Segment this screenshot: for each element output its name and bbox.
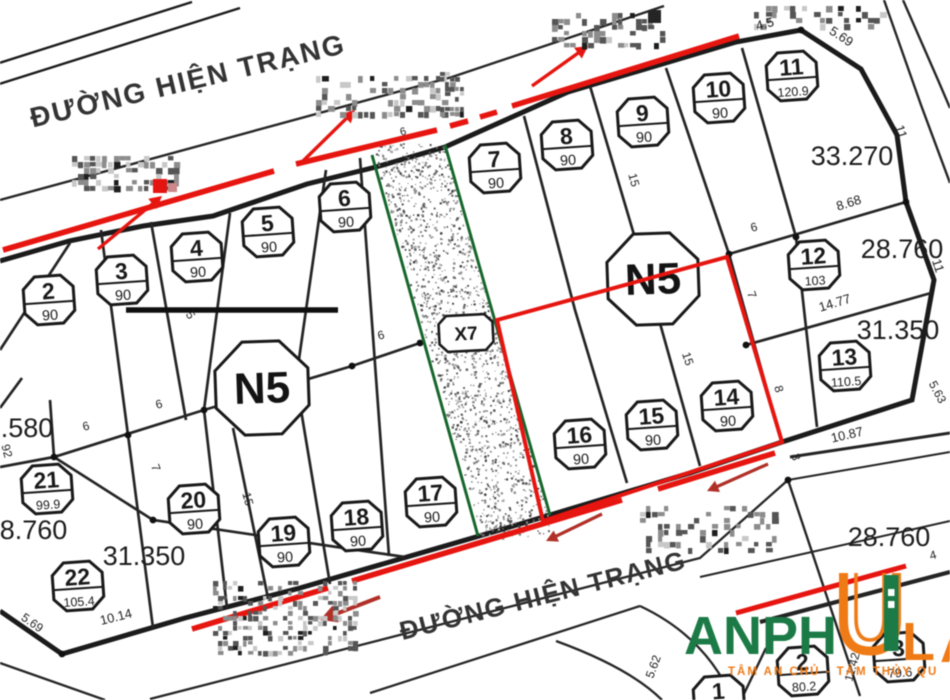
svg-text:90: 90 <box>115 287 132 304</box>
svg-text:3: 3 <box>114 258 129 285</box>
svg-text:28.760: 28.760 <box>861 234 944 264</box>
svg-text:14: 14 <box>713 383 741 411</box>
svg-text:ANPH: ANPH <box>684 606 837 666</box>
svg-text:N5: N5 <box>624 254 682 305</box>
svg-text:10: 10 <box>705 75 732 103</box>
svg-text:12: 12 <box>800 242 827 270</box>
svg-text:28.760: 28.760 <box>0 515 67 545</box>
svg-text:.580: .580 <box>1 413 54 443</box>
svg-text:99.9: 99.9 <box>35 497 60 513</box>
svg-text:90: 90 <box>712 105 729 122</box>
svg-text:90: 90 <box>560 152 577 169</box>
svg-text:120.9: 120.9 <box>777 84 809 100</box>
svg-text:22: 22 <box>64 563 91 591</box>
svg-text:13: 13 <box>831 343 858 371</box>
svg-text:19: 19 <box>270 519 297 547</box>
svg-text:80.2: 80.2 <box>791 679 816 695</box>
svg-text:N5: N5 <box>233 363 291 414</box>
svg-text:31.350: 31.350 <box>857 315 940 345</box>
svg-text:90: 90 <box>636 129 653 146</box>
svg-text:90: 90 <box>573 451 590 468</box>
svg-text:105.4: 105.4 <box>63 594 95 610</box>
svg-text:L: L <box>902 612 935 672</box>
svg-text:4: 4 <box>189 235 204 262</box>
svg-text:20: 20 <box>180 486 207 514</box>
svg-text:1: 1 <box>711 678 726 700</box>
svg-text:A: A <box>940 614 950 674</box>
svg-text:17: 17 <box>417 479 444 507</box>
svg-text:90: 90 <box>190 264 207 281</box>
svg-text:11: 11 <box>778 53 804 81</box>
svg-text:90: 90 <box>42 307 59 324</box>
svg-text:90: 90 <box>350 533 367 550</box>
svg-text:28.760: 28.760 <box>848 522 931 552</box>
svg-text:2: 2 <box>41 278 56 305</box>
svg-text:7: 7 <box>487 146 502 173</box>
svg-text:TÂM AN CHỦ - TÂM THỦY QU: TÂM AN CHỦ - TÂM THỦY QU <box>728 665 938 678</box>
svg-text:90: 90 <box>277 549 294 566</box>
svg-text:90: 90 <box>424 509 441 526</box>
svg-text:9: 9 <box>635 100 650 127</box>
svg-text:33.270: 33.270 <box>811 141 894 171</box>
svg-text:90: 90 <box>645 432 662 449</box>
svg-text:6: 6 <box>337 185 352 212</box>
svg-text:21: 21 <box>33 466 61 494</box>
svg-text:8: 8 <box>559 123 574 150</box>
svg-text:31.350: 31.350 <box>103 541 186 571</box>
svg-text:90: 90 <box>338 214 355 231</box>
svg-text:90: 90 <box>187 516 204 533</box>
svg-text:X7: X7 <box>454 323 478 345</box>
svg-text:90: 90 <box>488 175 505 192</box>
svg-text:5: 5 <box>260 210 275 237</box>
svg-text:110.5: 110.5 <box>830 374 861 390</box>
svg-text:103: 103 <box>804 273 826 288</box>
svg-text:18: 18 <box>343 503 371 531</box>
svg-text:90: 90 <box>261 239 278 256</box>
svg-text:15: 15 <box>638 402 666 430</box>
svg-text:90: 90 <box>720 413 737 430</box>
svg-text:16: 16 <box>566 421 593 449</box>
